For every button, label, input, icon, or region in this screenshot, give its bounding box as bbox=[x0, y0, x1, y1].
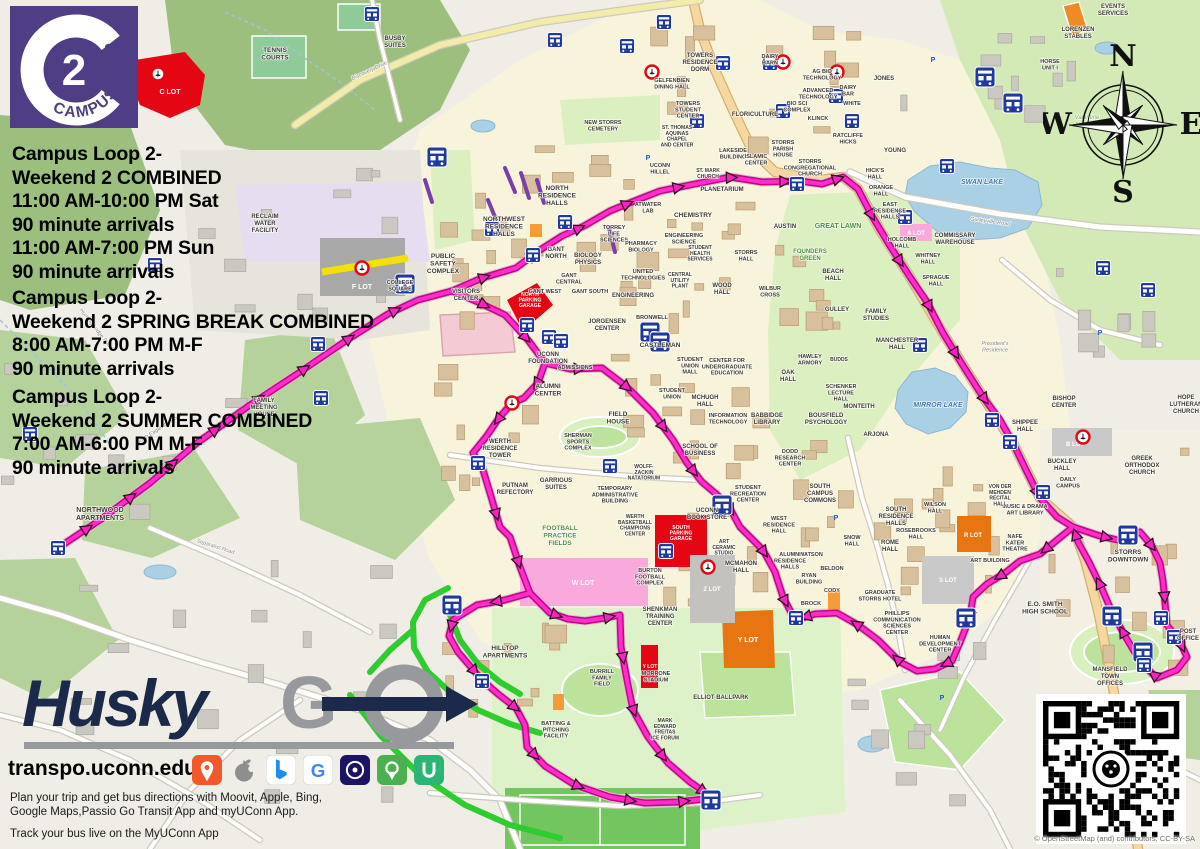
parking-lot-label: Y LOT bbox=[643, 664, 658, 670]
building bbox=[753, 572, 768, 592]
schedule-line: Campus Loop 2- bbox=[12, 287, 374, 311]
building bbox=[901, 95, 907, 111]
building bbox=[693, 26, 714, 40]
map-label: CHEMISTRY bbox=[674, 212, 713, 219]
building bbox=[943, 467, 952, 486]
building bbox=[552, 172, 573, 182]
building bbox=[988, 86, 1002, 99]
map-label: UCONNHILLEL bbox=[650, 163, 670, 175]
red-circle-marker bbox=[506, 397, 519, 410]
building bbox=[476, 193, 486, 208]
building bbox=[628, 428, 645, 437]
building bbox=[695, 284, 704, 291]
bus-stop-icon bbox=[659, 544, 674, 559]
bus-stop-icon bbox=[1118, 525, 1138, 545]
building bbox=[664, 587, 676, 605]
building bbox=[735, 445, 754, 460]
map-label: BISHOPCENTER bbox=[1052, 396, 1077, 409]
transit-app-icon[interactable] bbox=[377, 755, 407, 785]
bus-stop-icon bbox=[845, 114, 860, 129]
plan-trip-text: Plan your trip and get bus directions wi… bbox=[10, 791, 322, 819]
schedule-line: 90 minute arrivals bbox=[12, 358, 374, 382]
building bbox=[130, 504, 150, 519]
bus-stop-icon bbox=[442, 595, 462, 615]
compass-letter: E bbox=[1180, 107, 1200, 142]
building bbox=[611, 354, 629, 361]
map-label: ELLIOT BALLPARK bbox=[693, 695, 749, 701]
bus-stop-icon bbox=[790, 177, 805, 192]
building bbox=[736, 202, 755, 210]
building bbox=[441, 223, 458, 238]
plan-line-2: Google Maps,Passio Go Transit App and my… bbox=[10, 805, 322, 819]
map-label: BURTONFOOTBALLCOMPLEX bbox=[635, 568, 666, 587]
building bbox=[624, 179, 635, 189]
building bbox=[810, 289, 824, 301]
map-label: BRONWELL bbox=[636, 315, 668, 321]
schedule-summer: Campus Loop 2- Weekend 2 SUMMER COMBINED… bbox=[12, 386, 312, 480]
map-label: ST. MARKCHURCH bbox=[696, 168, 720, 180]
map-label: SHENKMANTRAININGCENTER bbox=[643, 607, 678, 627]
building bbox=[872, 730, 889, 748]
map-label: BATTING &PITCHINGFACILITY bbox=[541, 721, 571, 740]
red-circle-marker bbox=[702, 561, 715, 574]
huskygo-logo: Husky G bbox=[22, 664, 492, 756]
parking-lot-label: C LOT bbox=[160, 89, 182, 96]
moovit-app-icon[interactable] bbox=[192, 755, 222, 785]
myuconn-app-icon[interactable] bbox=[414, 755, 444, 785]
map-label: SHERMANSPORTSCOMPLEX bbox=[564, 433, 592, 452]
map-label: NEW STORRSCEMETERY bbox=[584, 120, 622, 132]
building bbox=[460, 312, 474, 330]
parking-p-icon: P bbox=[646, 155, 651, 162]
map-label: MONTEITH bbox=[843, 404, 874, 410]
building bbox=[974, 484, 983, 490]
logo-arrow-head bbox=[446, 686, 478, 722]
map-label: GREAT LAWN bbox=[815, 223, 862, 230]
building bbox=[901, 567, 918, 584]
bus-stop-icon bbox=[657, 15, 672, 30]
route-number: 2 bbox=[62, 46, 86, 95]
map-label: ENGINEERING bbox=[612, 293, 654, 299]
building bbox=[1012, 76, 1019, 90]
red-circle-marker bbox=[646, 66, 659, 79]
bus-stop-icon bbox=[956, 608, 976, 628]
map-label: CASTLEMAN bbox=[640, 342, 681, 349]
building bbox=[668, 249, 689, 258]
bus-stop-icon bbox=[51, 541, 66, 556]
building bbox=[517, 699, 532, 706]
bus-stop-icon bbox=[1102, 606, 1122, 626]
building bbox=[901, 587, 911, 595]
schedule-line: Weekend 2 SPRING BREAK COMBINED bbox=[12, 311, 374, 335]
map-label: ARJONA bbox=[863, 432, 889, 438]
bus-stop-icon bbox=[1096, 261, 1111, 276]
building bbox=[545, 625, 567, 643]
map-label: SCHOOL OFBUSINESS bbox=[682, 444, 718, 457]
building bbox=[813, 26, 834, 39]
building bbox=[487, 250, 496, 263]
campus-loop-2-map-poster: C LOTF LOTNORTHPARKINGGARAGESOUTHPARKING… bbox=[0, 0, 1200, 849]
bus-stop-icon bbox=[548, 33, 563, 48]
building bbox=[1056, 268, 1063, 276]
schedule-line: Campus Loop 2- bbox=[12, 386, 312, 410]
map-label: NORTHWOODAPARTMENTS bbox=[76, 507, 124, 522]
building bbox=[522, 405, 538, 424]
building bbox=[1132, 612, 1146, 630]
building bbox=[442, 466, 456, 480]
map-label: POSTOFFICE bbox=[1177, 629, 1199, 642]
building bbox=[848, 679, 866, 686]
building bbox=[357, 168, 373, 181]
map-label: EVENTSSERVICES bbox=[1098, 4, 1128, 17]
building bbox=[1142, 334, 1156, 347]
parking-lot-label: S LOT bbox=[939, 578, 957, 584]
building bbox=[683, 301, 689, 317]
bus-stop-icon bbox=[603, 459, 618, 474]
building bbox=[512, 239, 527, 258]
building bbox=[651, 27, 668, 46]
map-label: BELDON bbox=[820, 566, 843, 572]
building bbox=[981, 55, 1001, 66]
compass-rose: NESW bbox=[1043, 40, 1200, 210]
map-label: MIRROR LAKE bbox=[913, 402, 963, 409]
building bbox=[950, 795, 966, 806]
building bbox=[271, 560, 278, 576]
red-circle-marker bbox=[152, 68, 165, 81]
map-label: STORRSPARISHHOUSE bbox=[772, 140, 795, 159]
map-label: TOWERSSTUDENTCENTER bbox=[675, 101, 702, 120]
map-label: BUSBYSUITES bbox=[384, 36, 406, 49]
building bbox=[79, 585, 97, 591]
parking-lot-label: Y LOT bbox=[738, 637, 759, 644]
map-label: COLLEGESQUARE bbox=[387, 280, 414, 292]
building bbox=[1118, 315, 1129, 332]
map-label: MUSIC & DRAMAART LIBRARY bbox=[1002, 504, 1047, 516]
track-bus-text: Track your bus live on the MyUConn App bbox=[10, 828, 219, 840]
building bbox=[173, 610, 185, 628]
map-label: ADVANCEDTECHNOLOGY bbox=[799, 88, 838, 100]
map-label: GANT WEST bbox=[529, 289, 563, 295]
building bbox=[651, 375, 661, 386]
bus-stop-icon bbox=[701, 790, 721, 810]
building bbox=[434, 383, 451, 396]
map-label: WOODHALL bbox=[712, 283, 732, 296]
qr-code[interactable] bbox=[1036, 694, 1186, 844]
map-label: PUTNAMREFECTORY bbox=[497, 483, 534, 496]
bus-stop-icon bbox=[1036, 485, 1051, 500]
building bbox=[252, 610, 267, 622]
map-label: ADMISSIONS bbox=[558, 365, 593, 371]
building bbox=[1079, 334, 1099, 352]
building bbox=[834, 322, 840, 329]
map-label: FLORICULTURE bbox=[732, 112, 778, 118]
building bbox=[852, 700, 868, 710]
map-label: TENNISCOURTS bbox=[261, 47, 289, 61]
map-label: RECLAIMWATERFACILITY bbox=[251, 214, 278, 234]
map-label: STUDENTHEALTHSERVICES bbox=[687, 245, 713, 263]
apple-maps-icon[interactable] bbox=[229, 755, 259, 785]
building bbox=[968, 503, 985, 516]
pond bbox=[144, 565, 176, 579]
building bbox=[460, 475, 470, 491]
building bbox=[535, 146, 554, 153]
map-label: INFORMATIONTECHNOLOGY bbox=[709, 413, 748, 425]
schedule-line: 7:00 AM-6:00 PM M-F bbox=[12, 433, 312, 457]
bus-stop-icon bbox=[940, 159, 955, 174]
map-label: President'sResidence bbox=[981, 341, 1008, 353]
map-label: LORENZENSTABLES bbox=[1062, 27, 1095, 40]
building bbox=[303, 632, 311, 648]
building bbox=[1116, 577, 1130, 593]
map-label: ISLAMICCENTER bbox=[745, 154, 768, 166]
building bbox=[334, 190, 351, 198]
building bbox=[382, 787, 393, 802]
bus-stop-icon bbox=[1141, 283, 1156, 298]
schedule-line: 90 minute arrivals bbox=[12, 457, 312, 481]
map-label: WHITE bbox=[843, 101, 861, 107]
bus-stop-icon bbox=[789, 611, 804, 626]
svg-text:G: G bbox=[311, 760, 326, 781]
bus-stop-icon bbox=[620, 39, 635, 54]
building bbox=[637, 252, 659, 270]
map-label: JONES bbox=[874, 76, 894, 82]
parking-lot-label: W LOT bbox=[572, 580, 595, 587]
building bbox=[908, 731, 924, 748]
schedule-line: 90 minute arrivals bbox=[12, 214, 222, 238]
bus-stop-icon bbox=[716, 56, 731, 71]
map-label: SWAN LAKE bbox=[961, 179, 1003, 186]
building bbox=[472, 478, 480, 486]
building bbox=[590, 164, 611, 176]
building bbox=[531, 688, 539, 697]
map-label: BABBIDGELIBRARY bbox=[751, 413, 783, 426]
building bbox=[1103, 645, 1114, 663]
map-label: BIOLOGYPHYSICS bbox=[574, 253, 602, 266]
map-label: KLINCK bbox=[808, 116, 829, 122]
building bbox=[439, 364, 458, 380]
building bbox=[825, 51, 836, 67]
map-label: DAIRYBARN bbox=[762, 54, 779, 66]
building bbox=[933, 488, 943, 501]
map-label: PLANETARIUM bbox=[700, 187, 743, 193]
map-label: E.O. SMITHHIGH SCHOOL bbox=[1022, 601, 1068, 615]
building bbox=[822, 317, 833, 329]
compass-letter: N bbox=[1109, 40, 1136, 74]
parking-p-icon: P bbox=[940, 695, 945, 702]
app-icons-row: G bbox=[192, 755, 444, 785]
map-label: PHARMACYBIOLOGY bbox=[625, 241, 657, 253]
map-label: LAKESIDEBUILDING bbox=[719, 148, 747, 160]
building bbox=[371, 565, 393, 578]
bus-stop-icon bbox=[1003, 435, 1018, 450]
pond bbox=[471, 120, 495, 132]
map-label: HICK'SHALL bbox=[866, 168, 885, 180]
orange-building bbox=[553, 694, 564, 710]
building bbox=[726, 463, 740, 478]
red-circle-marker bbox=[356, 262, 369, 275]
building bbox=[838, 491, 853, 508]
compass-letter: S bbox=[1112, 175, 1134, 210]
parking-lot-label: Z LOT bbox=[703, 587, 721, 593]
building bbox=[776, 245, 784, 255]
map-label: ALUMNICENTER bbox=[535, 383, 562, 397]
building bbox=[896, 773, 916, 786]
map-label: GULLEY bbox=[825, 307, 849, 313]
bus-stop-icon bbox=[985, 413, 1000, 428]
bus-stop-icon bbox=[1137, 658, 1152, 673]
orange-building bbox=[530, 224, 542, 237]
transpo-url[interactable]: transpo.uconn.edu bbox=[8, 757, 197, 781]
building bbox=[108, 643, 129, 652]
map-label: VISITORSCENTER bbox=[452, 289, 480, 302]
building bbox=[692, 223, 703, 230]
red-circle-marker bbox=[1077, 431, 1090, 444]
bus-stop-icon bbox=[558, 215, 573, 230]
building bbox=[669, 313, 679, 333]
bus-stop-icon bbox=[1003, 93, 1023, 113]
map-label: SNOWHALL bbox=[843, 535, 861, 547]
schedule-line: 11:00 AM-10:00 PM Sat bbox=[12, 190, 222, 214]
passio-go-app-icon[interactable] bbox=[340, 755, 370, 785]
building bbox=[380, 624, 396, 638]
bus-stop-icon bbox=[471, 456, 486, 471]
schedule-line: Weekend 2 COMBINED bbox=[12, 167, 222, 191]
building bbox=[908, 547, 925, 562]
building bbox=[663, 407, 682, 416]
building bbox=[847, 31, 861, 40]
building bbox=[1078, 310, 1091, 330]
schedule-line: Weekend 2 SUMMER COMBINED bbox=[12, 410, 312, 434]
parking-p-icon: P bbox=[931, 57, 936, 64]
plan-line-1: Plan your trip and get bus directions wi… bbox=[10, 791, 322, 805]
map-label: YOUNG bbox=[884, 148, 906, 154]
map-label: COMMISSARYWAREHOUSE bbox=[934, 233, 975, 246]
building bbox=[225, 259, 246, 272]
parking-lot-label: R LOT bbox=[964, 533, 982, 539]
bus-stop-icon bbox=[554, 334, 569, 349]
map-label: BOUSFIELDPSYCHOLOGY bbox=[805, 413, 847, 426]
bus-stop-icon bbox=[365, 7, 380, 22]
bus-stop-icon bbox=[314, 391, 329, 406]
bus-stop-icon bbox=[427, 147, 447, 167]
building bbox=[371, 171, 380, 177]
map-label: ART BUILDING bbox=[970, 558, 1009, 564]
bus-stop-icon bbox=[526, 248, 541, 263]
building bbox=[457, 425, 465, 440]
building bbox=[667, 219, 676, 227]
building bbox=[691, 410, 705, 425]
map-label: WILBURCROSS bbox=[759, 286, 781, 298]
route-badge: 2 CAMPUS LOOP bbox=[10, 6, 138, 128]
map-label: GANTNORTH bbox=[545, 247, 566, 260]
schedule-line: Campus Loop 2- bbox=[12, 143, 222, 167]
schedule-weekend-combined: Campus Loop 2- Weekend 2 COMBINED 11:00 … bbox=[12, 143, 222, 284]
bus-stop-icon bbox=[520, 318, 535, 333]
map-label: BROCK bbox=[801, 601, 821, 607]
building bbox=[732, 388, 749, 407]
map-label: FAMILYSTUDIES bbox=[863, 309, 889, 322]
building bbox=[748, 137, 768, 154]
building bbox=[382, 217, 398, 234]
building bbox=[780, 309, 799, 326]
bing-app-icon[interactable] bbox=[266, 755, 296, 785]
compass-letter: W bbox=[1043, 107, 1073, 142]
schedule-line: 11:00 AM-7:00 PM Sun bbox=[12, 237, 222, 261]
building bbox=[550, 642, 560, 650]
building bbox=[814, 127, 830, 133]
map-label: BUDDS bbox=[830, 357, 848, 363]
building bbox=[998, 33, 1012, 43]
map-label: BEACHHALL bbox=[822, 269, 843, 282]
osm-attribution: © OpenStreetMap (and) contributors, CC-B… bbox=[1034, 834, 1195, 843]
logo-arrow-shaft bbox=[322, 697, 450, 711]
building bbox=[1049, 554, 1055, 573]
map-label: MORRONESTADIUM bbox=[642, 671, 671, 683]
schedule-line: 90 minute arrivals bbox=[12, 261, 222, 285]
schedule-spring-break: Campus Loop 2- Weekend 2 SPRING BREAK CO… bbox=[12, 287, 374, 381]
map-label: GANT SOUTH bbox=[572, 289, 608, 295]
parking-lot-label: SOUTHPARKINGGARAGE bbox=[670, 525, 693, 542]
map-label: CODY bbox=[824, 588, 840, 594]
map-label: AUSTIN bbox=[774, 224, 796, 230]
map-label: WATSON bbox=[799, 552, 823, 558]
parking-p-icon: P bbox=[834, 515, 839, 522]
building bbox=[1180, 448, 1189, 455]
map-label: BIO SCICOMPLEX bbox=[783, 101, 811, 113]
map-label: ROMEHALL bbox=[881, 540, 899, 553]
logo-husky-text: Husky bbox=[22, 666, 211, 740]
building bbox=[973, 642, 986, 659]
bus-stop-icon bbox=[1154, 611, 1169, 626]
map-label: OAKHALL bbox=[780, 370, 796, 383]
building bbox=[1143, 311, 1155, 331]
schedule-line: 8:00 AM-7:00 PM M-F bbox=[12, 334, 374, 358]
building bbox=[728, 224, 740, 235]
map-label: FIELDHOUSE bbox=[606, 411, 630, 425]
parking-p-icon: P bbox=[1098, 330, 1103, 337]
bus-stop-icon bbox=[975, 67, 995, 87]
map-label: GELFENBIENDINING HALL bbox=[654, 78, 690, 90]
building bbox=[806, 528, 819, 541]
logo-underline bbox=[24, 742, 454, 749]
map-label: PUBLICSAFETYCOMPLEX bbox=[427, 253, 460, 275]
map-label: HAWLEYARMORY bbox=[798, 354, 823, 366]
google-maps-icon[interactable]: G bbox=[303, 755, 333, 785]
